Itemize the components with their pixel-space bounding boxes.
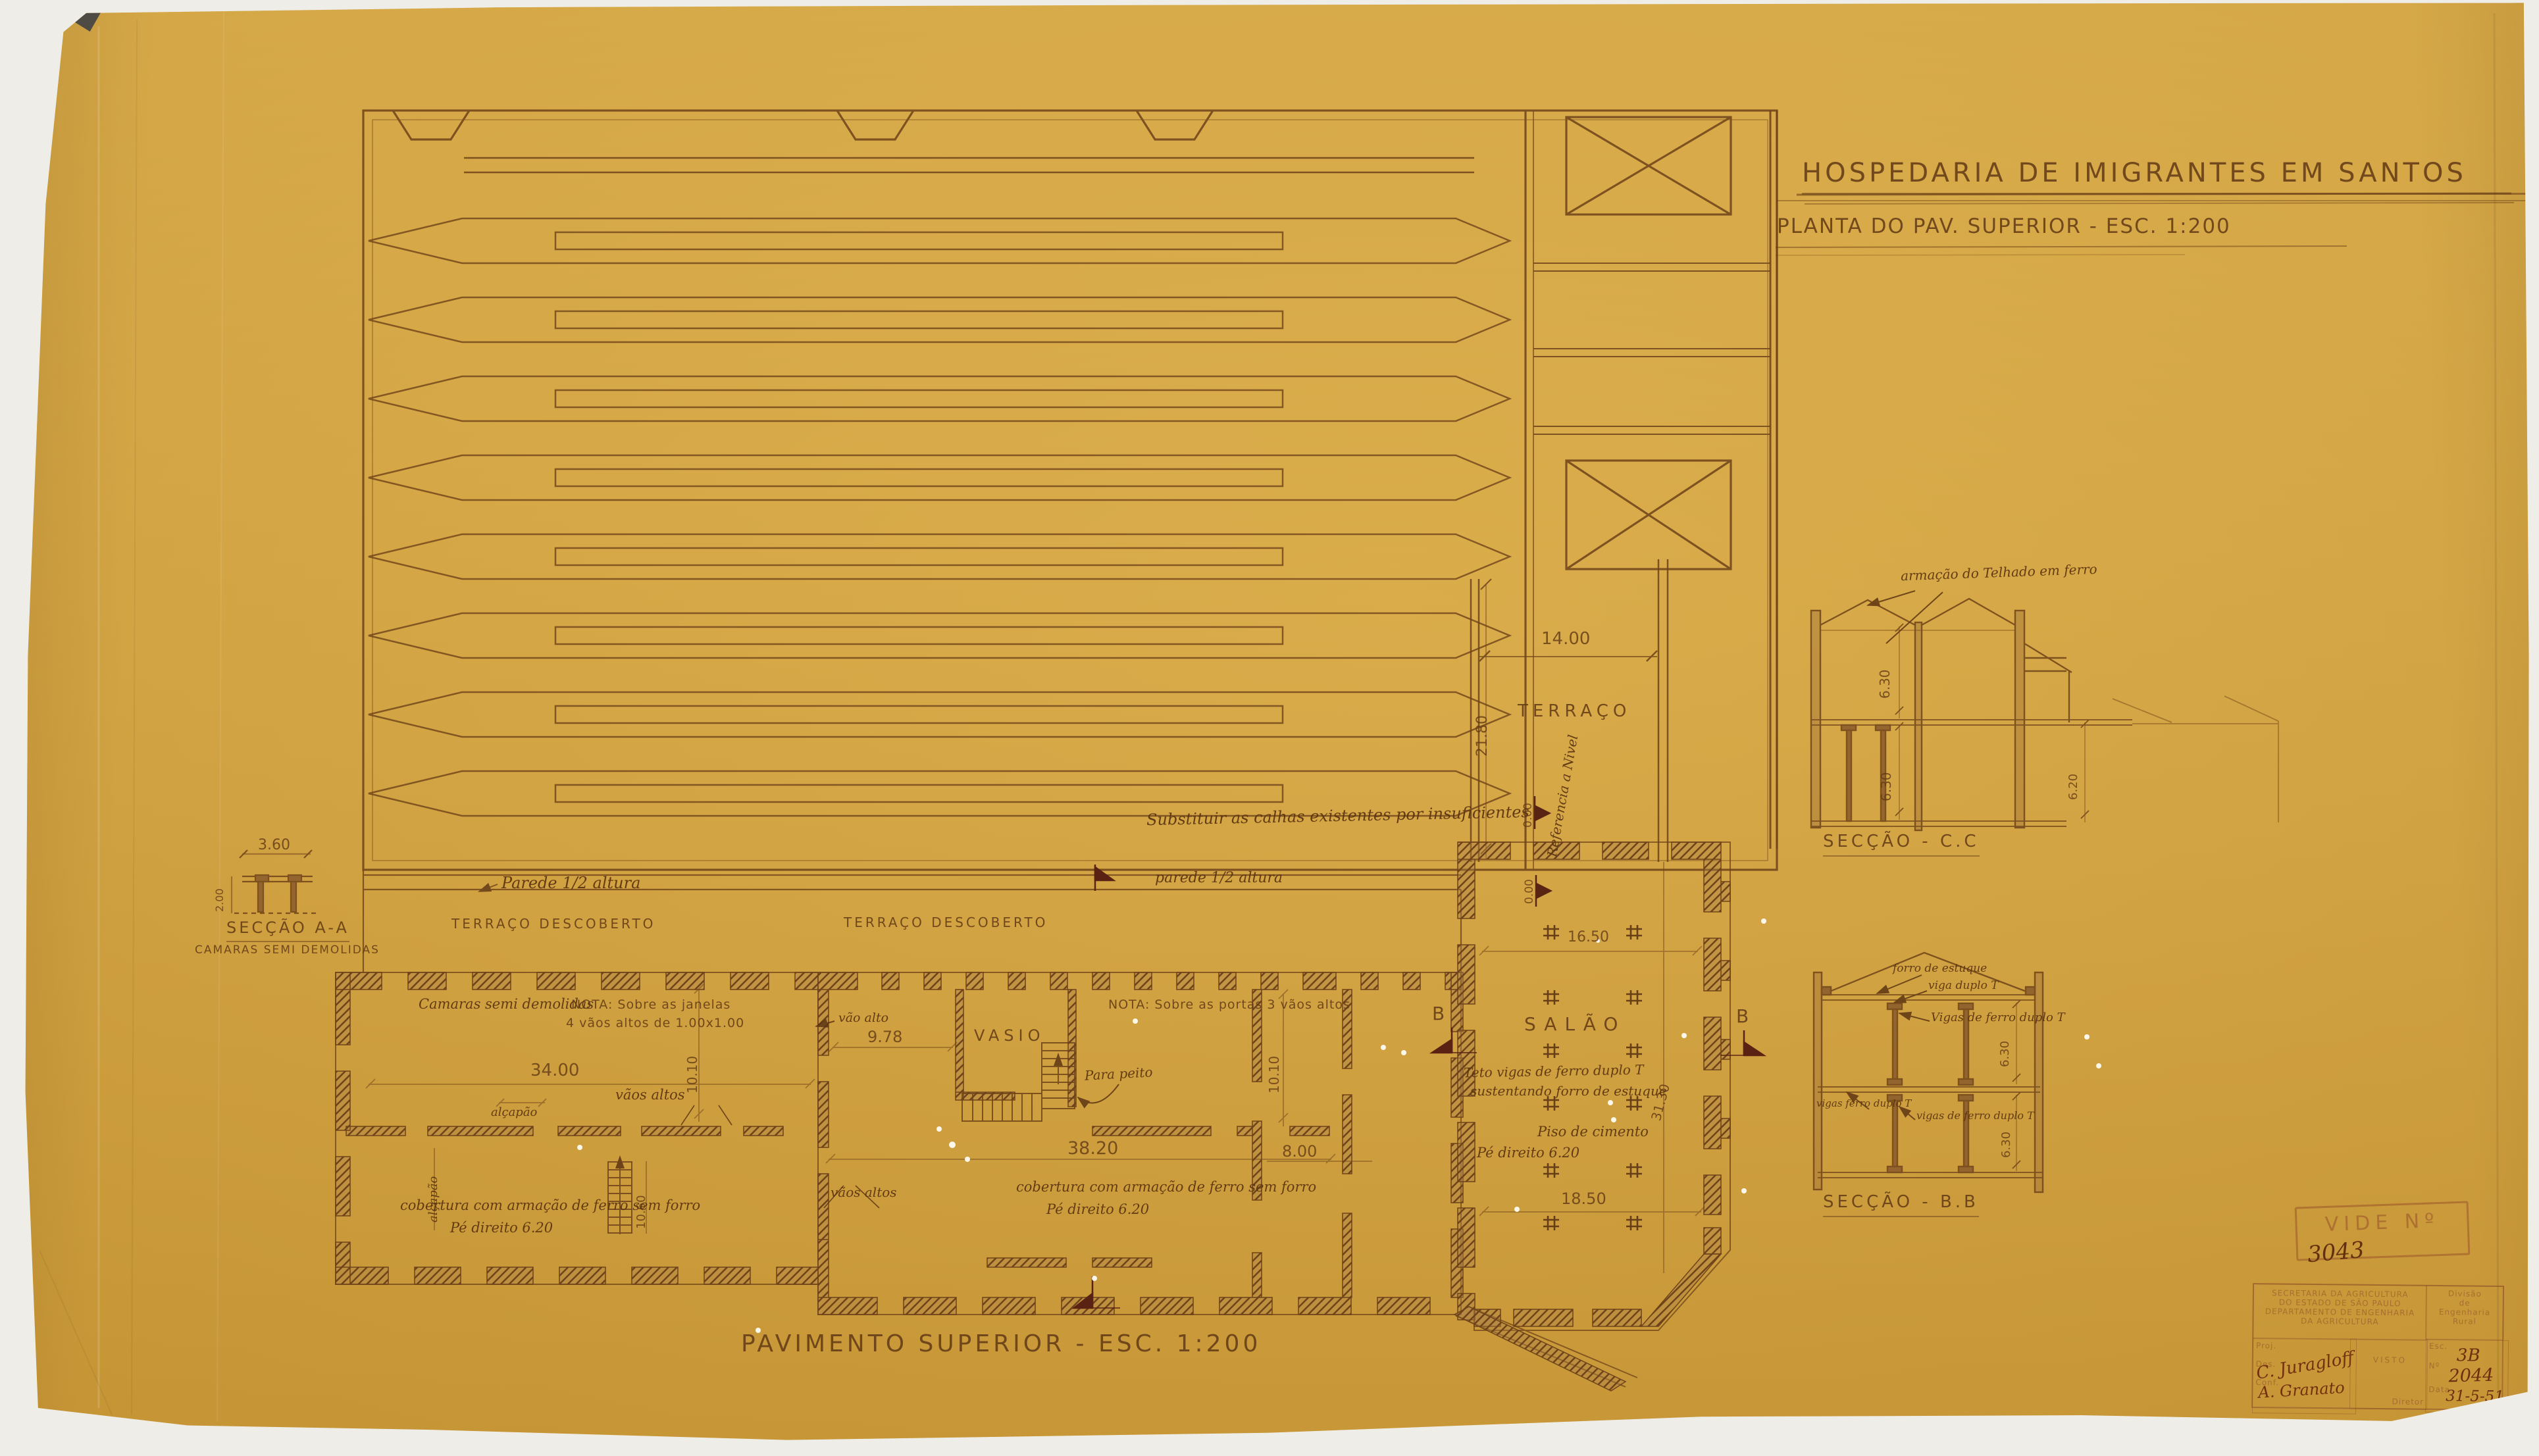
bb-dim-lower: 6.30 — [1999, 1132, 2013, 1158]
door-note: NOTA: Sobre as portas 3 vãos altos — [1108, 997, 1350, 1012]
level-mark-2: 0.00 — [1523, 879, 1536, 904]
note-leaders — [681, 591, 1943, 1208]
open-terrace-center: TERRAÇO DESCOBERTO — [844, 915, 1048, 930]
photographed-drawing: { "sheet":{"size_note":"53x95", "title1"… — [0, 0, 2539, 1456]
section-bb-title: SECÇÃO - B.B — [1823, 1192, 1979, 1217]
hall-height-note: Pé direito 6.20 — [1477, 1145, 1579, 1161]
register-number: 3B — [2457, 1345, 2480, 1365]
division-line-1: Divisão — [2426, 1289, 2503, 1299]
terrace-label: TERRAÇO — [1518, 701, 1631, 721]
terrace-dim-depth: 21.80 — [1474, 715, 1491, 757]
room-width-dim: 9.78 — [867, 1028, 902, 1046]
chambers-note: Camaras semi demolidas — [419, 996, 594, 1012]
bb-note-ceiling: forro de estuque — [1893, 962, 1987, 975]
mid-width-dim: 38.20 — [1067, 1138, 1118, 1159]
section-aa-subtitle: CAMARAS SEMI DEMOLIDAS — [195, 943, 380, 957]
void-label: VASIO — [974, 1026, 1045, 1045]
org-line-4: DA AGRICULTURA — [2253, 1316, 2426, 1327]
bb-note-beam: viga duplo T — [1928, 979, 1999, 992]
vide-stamp: VIDE Nº 3043 — [2295, 1201, 2471, 1261]
org-line-3: DEPARTAMENTO DE ENGENHARIA — [2253, 1307, 2426, 1318]
hall-floor-note: Piso de cimento — [1537, 1124, 1649, 1140]
drawing-subtitle: PLANTA DO PAV. SUPERIOR - ESC. 1:200 — [1777, 214, 2231, 238]
hall-ceiling-note-2: sustentando forro de estuque — [1470, 1083, 1667, 1099]
vide-stamp-label: VIDE Nº — [2297, 1209, 2467, 1238]
mid-roof-note-1: cobertura com armação de ferro sem forro — [1016, 1179, 1316, 1195]
high-openings-note-2: vãos altos — [831, 1184, 897, 1200]
half-wall-note-left: Parede 1/2 altura — [501, 874, 640, 892]
section-cc-title: SECÇÃO - C.C — [1823, 832, 1980, 857]
window-note-1: NOTA: Sobre as janelas — [571, 997, 731, 1012]
sa-width-dim: 3.60 — [258, 837, 290, 853]
mid-depth-dim: 10.10 — [1266, 1056, 1282, 1093]
stair-vasio — [962, 1043, 1075, 1121]
vide-stamp-number: 3043 — [2307, 1237, 2366, 1268]
field-diretor: Diretor — [2392, 1397, 2424, 1407]
cc-dim-upper: 6.30 — [1877, 669, 1893, 699]
tracing-paper-sheet: 53x95 HOSPEDARIA DE IMIGRANTES EM SANTOS… — [0, 0, 2539, 1456]
division-line-3: Engenharia — [2426, 1307, 2503, 1317]
left-roof-note-1: cobertura com armação de ferro sem forro — [400, 1197, 700, 1213]
left-roof-note-2: Pé direito 6.20 — [450, 1220, 553, 1236]
high-opening-note: vão alto — [838, 1011, 888, 1025]
bb-note-beams-lower: vigas de ferro duplo T — [1916, 1109, 2034, 1122]
high-openings-note: vãos altos — [615, 1087, 685, 1103]
paper-size-note: 53x95 — [13, 696, 29, 741]
section-mark-b-right: B — [1736, 1005, 1749, 1027]
bb-note-beams-upper: Vigas de ferro duplo T — [1931, 1011, 2065, 1024]
mid-roof-note-2: Pé direito 6.20 — [1046, 1201, 1149, 1217]
open-terrace-left: TERRAÇO DESCOBERTO — [451, 916, 655, 932]
window-note-2: 4 vãos altos de 1.00x1.00 — [566, 1016, 744, 1030]
plan-caption: PAVIMENTO SUPERIOR - ESC. 1:200 — [741, 1330, 1261, 1357]
division-line-2: de — [2426, 1298, 2503, 1308]
hall-width-dim: 16.50 — [1568, 929, 1609, 945]
drawing-date: 31-5-51 — [2446, 1388, 2504, 1405]
hall-label: SALÃO — [1524, 1013, 1626, 1035]
section-aa-drawing — [232, 850, 317, 913]
field-visto: VISTO — [2373, 1355, 2407, 1365]
cc-dim-right: 6.20 — [2066, 774, 2080, 800]
trapdoor-note: alçapão — [491, 1105, 537, 1119]
section-aa-title: SECÇÃO A-A — [226, 918, 349, 942]
hall-width2-dim: 18.50 — [1561, 1190, 1606, 1208]
title-block: SECRETARIA DA AGRICULTURA DO ESTADO DE S… — [2251, 1283, 2504, 1411]
stair-left-block — [608, 1157, 632, 1234]
roof-bands — [369, 218, 1510, 816]
hall-ceiling-note-1: Teto vigas de ferro duplo T — [1464, 1062, 1644, 1081]
cc-dim-lower: 6.30 — [1878, 772, 1894, 801]
drawing-number: 2044 — [2448, 1365, 2494, 1387]
terrace-dim-width: 14.00 — [1541, 629, 1590, 649]
left-block-depth-dim: 10.10 — [684, 1056, 700, 1093]
left-block-width-dim: 34.00 — [530, 1061, 579, 1080]
drawing-title: HOSPEDARIA DE IMIGRANTES EM SANTOS — [1802, 158, 2539, 195]
half-wall-note-right: parede 1/2 altura — [1155, 870, 1283, 886]
mid-width8-dim: 8.00 — [1282, 1142, 1317, 1161]
bb-note-beams-left: vigas ferro duplo T — [1816, 1097, 1911, 1109]
division-line-4: Rural — [2426, 1317, 2503, 1326]
sa-height-dim: 2.00 — [213, 888, 226, 912]
section-mark-b-left: B — [1432, 1003, 1445, 1024]
bb-dim-upper: 6.30 — [1998, 1041, 2012, 1067]
level-mark-1: 0.00 — [1522, 803, 1535, 828]
